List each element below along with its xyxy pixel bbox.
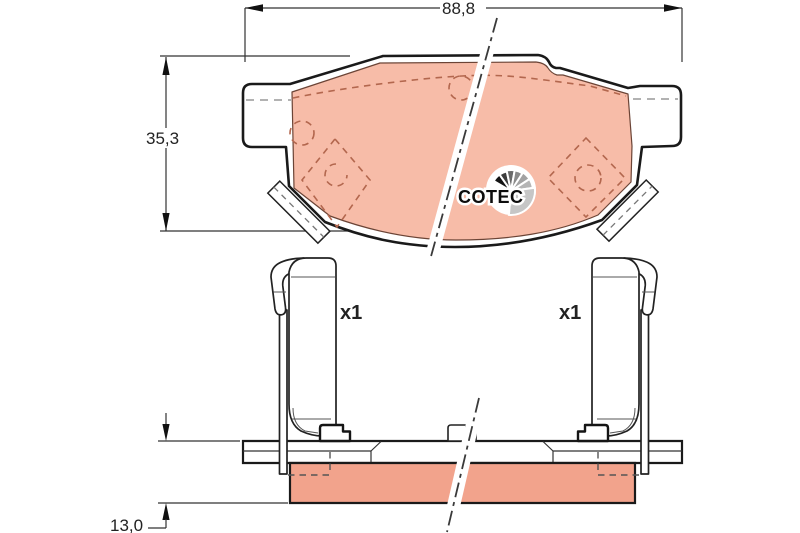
thickness-dimension [148, 413, 288, 528]
left-clip-foot [320, 425, 350, 441]
arrow-down-icon [162, 424, 169, 441]
arrow-up-icon [162, 57, 169, 75]
width-label: 88,8 [442, 0, 475, 18]
left-clip-qty-label: x1 [340, 302, 362, 324]
right-clip-foot [578, 425, 608, 441]
left-clip-strap [289, 258, 336, 436]
arrow-down-icon [162, 213, 169, 231]
right-clip-strap [592, 258, 639, 436]
right-clip-qty-label: x1 [559, 302, 581, 324]
arrow-left-icon [245, 4, 263, 12]
pad-front-view: COTEC [243, 18, 681, 260]
thickness-label: 13,0 [110, 516, 143, 533]
height-label: 35,3 [146, 129, 179, 148]
left-clip-leg [280, 310, 288, 474]
arrow-right-icon [664, 4, 682, 12]
brake-pad-drawing: COTEC [0, 0, 800, 533]
right-clip-leg [641, 310, 649, 474]
logo-text: COTEC [458, 187, 524, 207]
arrow-up-icon [162, 503, 169, 520]
drawing-canvas: COTEC [0, 0, 800, 533]
